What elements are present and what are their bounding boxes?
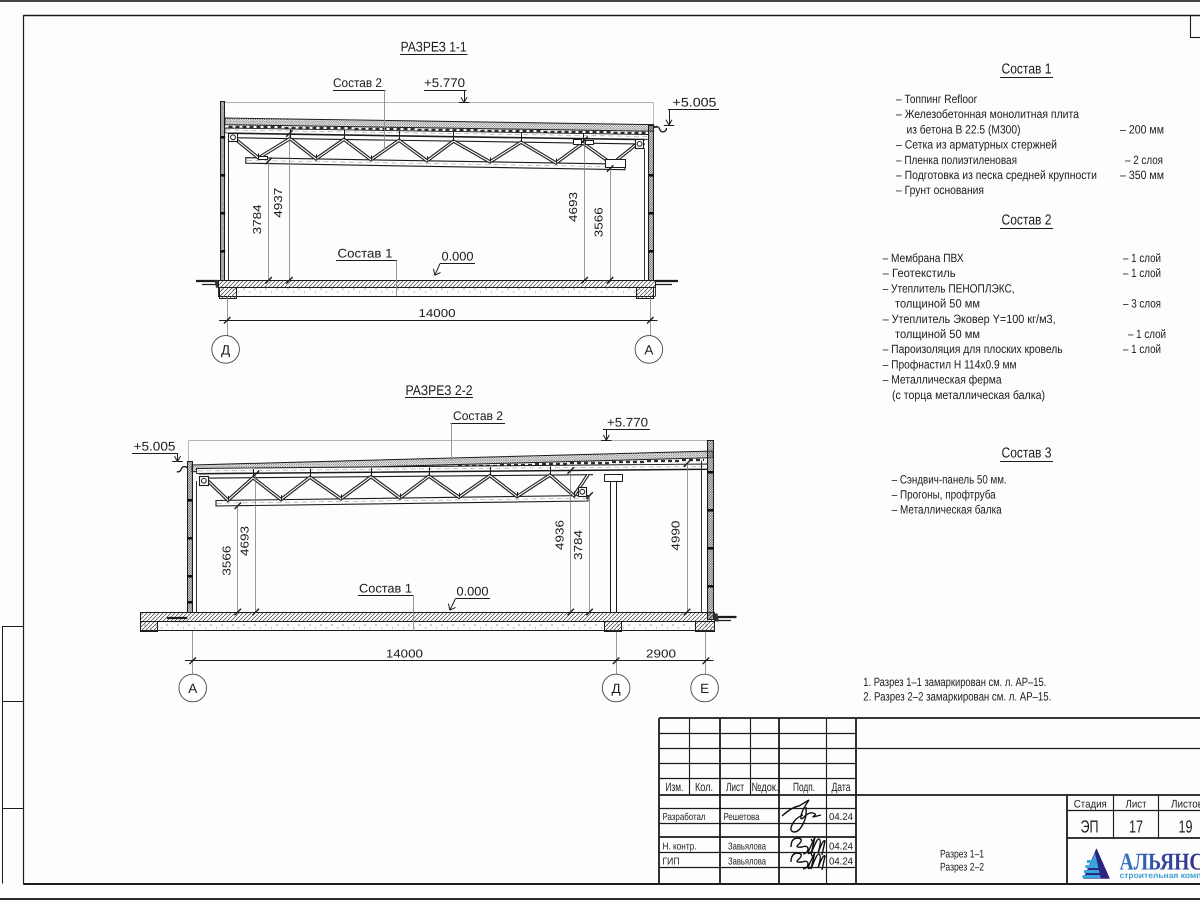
svg-text:Листов: Листов — [1171, 798, 1200, 810]
svg-text:Состав 2: Состав 2 — [1002, 213, 1052, 229]
svg-text:Состав 2: Состав 2 — [453, 409, 503, 423]
svg-text:– 1 слой: – 1 слой — [1123, 342, 1161, 356]
svg-text:А: А — [644, 342, 653, 357]
svg-text:– 1 слой: – 1 слой — [1123, 266, 1161, 280]
svg-text:Н. контр.: Н. контр. — [663, 842, 697, 853]
svg-text:– Топпинг Refloor: – Топпинг Refloor — [896, 92, 977, 106]
svg-text:– Пароизоляция для плоских кро: – Пароизоляция для плоских кровель — [883, 342, 1063, 356]
svg-text:– 1 слой: – 1 слой — [1123, 251, 1161, 265]
svg-text:строительная компания: строительная компания — [1120, 871, 1200, 880]
svg-text:Стадия: Стадия — [1074, 798, 1107, 810]
svg-text:(с торца металлическая балка): (с торца металлическая балка) — [892, 388, 1045, 402]
svg-text:Состав 1: Состав 1 — [359, 582, 412, 596]
svg-text:1. Разрез 1–1 замаркирован см.: 1. Разрез 1–1 замаркирован см. л. АР–15. — [863, 675, 1046, 689]
svg-text:Разрез 1–1: Разрез 1–1 — [940, 849, 984, 861]
svg-text:Изм.: Изм. — [665, 780, 683, 794]
svg-text:РАЗРЕЗ 1-1: РАЗРЕЗ 1-1 — [401, 39, 467, 55]
svg-text:3784: 3784 — [573, 529, 585, 560]
svg-text:– Грунт основания: – Грунт основания — [896, 183, 984, 197]
svg-text:– Сэндвич-панель 50 мм.: – Сэндвич-панель 50 мм. — [892, 473, 1007, 487]
svg-text:– 350 мм: – 350 мм — [1120, 168, 1164, 182]
svg-text:Дата: Дата — [832, 780, 851, 794]
svg-text:3784: 3784 — [252, 204, 264, 235]
svg-text:А: А — [188, 681, 197, 696]
svg-text:2900: 2900 — [646, 649, 676, 661]
svg-text:14000: 14000 — [386, 649, 423, 661]
svg-text:Лист: Лист — [726, 780, 744, 794]
svg-text:– Профнастил Н 114х0.9 мм: – Профнастил Н 114х0.9 мм — [883, 357, 1017, 371]
svg-text:– 3 слоя: – 3 слоя — [1123, 297, 1161, 311]
svg-text:3566: 3566 — [221, 546, 233, 576]
svg-text:– Сетка из арматурных стержней: – Сетка из арматурных стержней — [896, 138, 1057, 152]
svg-text:– Металлическая ферма: – Металлическая ферма — [883, 373, 1002, 387]
svg-text:3566: 3566 — [594, 207, 606, 237]
svg-text:0.000: 0.000 — [442, 249, 474, 263]
svg-text:Состав 3: Состав 3 — [1002, 446, 1052, 462]
svg-text:– 1 слой: – 1 слой — [1128, 327, 1166, 341]
svg-text:17: 17 — [1129, 817, 1143, 837]
svg-text:4693: 4693 — [568, 192, 580, 222]
svg-text:– Геотекстиль: – Геотекстиль — [883, 266, 956, 280]
svg-text:– Подготовка из песка средней: – Подготовка из песка средней крупности — [896, 168, 1097, 182]
svg-text:2. Разрез 2–2 замаркирован см.: 2. Разрез 2–2 замаркирован см. л. АР–15. — [863, 690, 1051, 704]
svg-text:4937: 4937 — [273, 188, 285, 218]
svg-text:04.24: 04.24 — [829, 812, 853, 823]
svg-text:Завьялова: Завьялова — [728, 857, 766, 868]
svg-text:+5.005: +5.005 — [673, 96, 717, 110]
svg-text:4936: 4936 — [554, 520, 566, 550]
svg-text:Лист: Лист — [1126, 798, 1147, 810]
svg-text:19: 19 — [1179, 817, 1193, 837]
svg-text:04.24: 04.24 — [829, 842, 853, 853]
svg-text:Кол.: Кол. — [695, 780, 713, 794]
svg-text:– 200 мм: – 200 мм — [1120, 122, 1164, 136]
svg-text:Завьялова: Завьялова — [728, 842, 766, 853]
svg-text:– Пленка полиэтиленовая: – Пленка полиэтиленовая — [896, 153, 1017, 167]
svg-text:+5.770: +5.770 — [424, 76, 465, 90]
svg-text:Разработал: Разработал — [663, 812, 706, 823]
svg-text:Подп.: Подп. — [793, 780, 815, 794]
svg-text:ЭП: ЭП — [1081, 817, 1099, 837]
svg-text:– 2 слоя: – 2 слоя — [1125, 153, 1163, 167]
svg-text:– Утеплитель Эковер Y=100 кг/м: – Утеплитель Эковер Y=100 кг/м3, — [883, 312, 1056, 326]
svg-text:4693: 4693 — [239, 526, 251, 556]
svg-text:Состав 2: Состав 2 — [333, 76, 382, 90]
svg-text:14000: 14000 — [419, 308, 456, 320]
svg-text:4990: 4990 — [671, 521, 683, 551]
svg-text:– Прогоны, профтруба: – Прогоны, профтруба — [892, 488, 996, 502]
svg-text:Д: Д — [221, 342, 230, 357]
svg-text:+5.005: +5.005 — [134, 439, 176, 453]
svg-text:№док.: №док. — [752, 780, 779, 794]
svg-text:Состав 1: Состав 1 — [1002, 62, 1052, 78]
svg-text:Состав 1: Состав 1 — [338, 246, 393, 260]
svg-text:04.24: 04.24 — [829, 857, 853, 868]
svg-text:толщиной 50 мм: толщиной 50 мм — [895, 297, 980, 311]
svg-text:– Железобетонная монолитная п: – Железобетонная монолитная плита — [896, 107, 1079, 121]
svg-text:Решетова: Решетова — [724, 812, 760, 823]
svg-text:Е: Е — [700, 681, 709, 696]
svg-text:РАЗРЕЗ 2-2: РАЗРЕЗ 2-2 — [406, 382, 473, 398]
svg-text:Разрез 2–2: Разрез 2–2 — [940, 862, 984, 874]
svg-text:– Металлическая балка: – Металлическая балка — [892, 503, 1002, 517]
svg-text:+5.770: +5.770 — [607, 416, 648, 430]
svg-text:0.000: 0.000 — [457, 584, 489, 598]
svg-text:– Утеплитель ПЕНОПЛЭКС,: – Утеплитель ПЕНОПЛЭКС, — [883, 281, 1015, 295]
svg-text:– Мембрана ПВХ: – Мембрана ПВХ — [883, 251, 964, 265]
svg-text:из бетона В 22.5 (М300): из бетона В 22.5 (М300) — [907, 122, 1021, 136]
svg-text:толщиной 50 мм: толщиной 50 мм — [895, 327, 980, 341]
svg-text:Д: Д — [612, 681, 621, 696]
svg-text:ГИП: ГИП — [663, 857, 680, 868]
